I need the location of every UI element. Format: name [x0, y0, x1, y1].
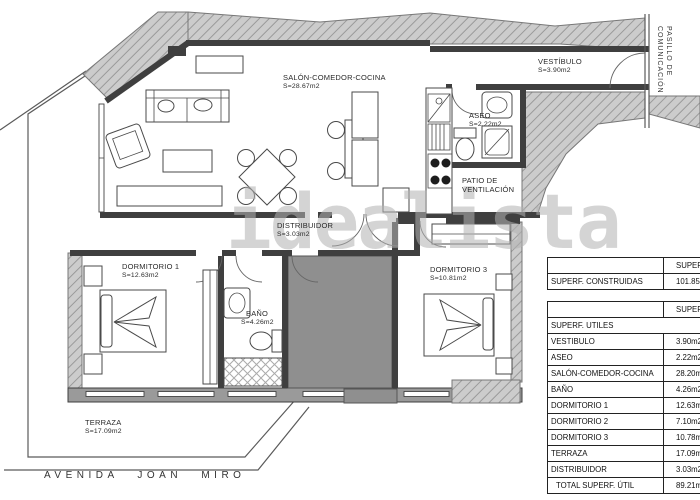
table-row: SALÓN-COMEDOR-COCINA 28.20m2 [548, 366, 700, 382]
armchair [105, 123, 151, 169]
bath-toilet [250, 330, 282, 352]
header-empty-cell [548, 258, 664, 274]
row-value: 3.90m2 [664, 334, 700, 350]
room-name: VESTÍBULO [538, 57, 582, 66]
sofa [146, 90, 229, 122]
table-row: SUPERF. UTILES [548, 318, 700, 334]
room-area: S=10.81m2 [430, 274, 487, 283]
aseo-toilet [454, 128, 476, 160]
row-label: ASEO [548, 350, 664, 366]
row-value: 2.22m2 [664, 350, 700, 366]
label-bano: BAÑO S=4.26m2 [241, 309, 274, 327]
row-value: 17.09m2 [664, 446, 700, 462]
street-label: AVENIDA JOAN MIRO [44, 470, 245, 481]
header-cell: SUPERFICIES [664, 258, 700, 274]
row-label: BAÑO [548, 382, 664, 398]
room-name: BAÑO [241, 309, 268, 318]
row-label: TERRAZA [548, 446, 664, 462]
row-value: 28.20m2 [664, 366, 700, 382]
table-row: SUPERFICIES [548, 302, 700, 318]
row-label: SALÓN-COMEDOR-COCINA [548, 366, 664, 382]
room-area: S=12.63m2 [122, 271, 179, 280]
label-dormitorio-1: DORMITORIO 1 S=12.63m2 [122, 262, 179, 280]
kitchen-counter [426, 88, 452, 214]
surface-tables: SUPERFICIES SUPERF. CONSTRUIDAS 101.85m2… [547, 257, 700, 494]
row-label: DORMITORIO 1 [548, 398, 664, 414]
windows [99, 104, 104, 212]
label-salon: SALÓN-COMEDOR-COCINA S=28.67m2 [283, 73, 386, 91]
row-value: 3.03m2 [664, 462, 700, 478]
table-row: DISTRIBUIDOR 3.03m2 [548, 462, 700, 478]
room-name: DISTRIBUIDOR [277, 221, 333, 230]
label-terraza: TERRAZA S=17.09m2 [85, 418, 122, 436]
room-name: SALÓN-COMEDOR-COCINA [283, 73, 386, 82]
kitchen-side-table [383, 188, 409, 212]
row-value: 101.85m2 [664, 274, 700, 290]
total-value: 89.21m2 [664, 478, 700, 494]
room-name: DORMITORIO 3 [430, 265, 487, 274]
label-dormitorio-3: DORMITORIO 3 S=10.81m2 [430, 265, 487, 283]
row-label: DISTRIBUIDOR [548, 462, 664, 478]
table-row: DORMITORIO 1 12.63m2 [548, 398, 700, 414]
table-row: VESTIBULO 3.90m2 [548, 334, 700, 350]
label-patio: PATIO DE VENTILACIÓN [462, 176, 514, 194]
shower-tray [224, 358, 282, 386]
row-label: VESTIBULO [548, 334, 664, 350]
label-vestibulo: VESTÍBULO S=3.90m2 [538, 57, 582, 75]
table-row: SUPERFICIES [548, 258, 700, 274]
header-empty-cell [548, 302, 664, 318]
table-row: BAÑO 4.26m2 [548, 382, 700, 398]
room-name: PATIO DE VENTILACIÓN [462, 176, 514, 194]
total-label: TOTAL SUPERF. ÚTIL [548, 478, 664, 494]
room-name: ASEO [469, 111, 491, 120]
section-label: SUPERF. UTILES [548, 318, 700, 334]
bed-dormitorio-1 [84, 266, 166, 374]
room-area: S=3.03m2 [277, 230, 333, 239]
floor-plan-page: { "watermark_text": "idealista", "street… [0, 0, 700, 500]
label-distribuidor: DISTRIBUIDOR S=3.03m2 [277, 221, 333, 239]
table-row: DORMITORIO 3 10.78m2 [548, 430, 700, 446]
table-row: ASEO 2.22m2 [548, 350, 700, 366]
coffee-table [163, 150, 212, 172]
room-name: DORMITORIO 1 [122, 262, 179, 271]
label-aseo: ASEO S=2.22m2 [469, 111, 502, 129]
sideboard [117, 186, 222, 206]
row-value: 4.26m2 [664, 382, 700, 398]
row-label: DORMITORIO 2 [548, 414, 664, 430]
tv-cabinet [196, 56, 243, 73]
dining-table [238, 149, 297, 205]
wardrobe-dormitorio-1 [203, 270, 217, 384]
room-area: S=2.22m2 [469, 120, 502, 129]
row-value: 10.78m2 [664, 430, 700, 446]
room-area: S=17.09m2 [85, 427, 122, 436]
table-row: TOTAL SUPERF. ÚTIL 89.21m2 [548, 478, 700, 494]
bed-dormitorio-3 [424, 274, 512, 374]
wardrobe-dormitorio-3 [432, 224, 510, 244]
header-cell: SUPERFICIES [664, 302, 700, 318]
built-surface-table: SUPERFICIES SUPERF. CONSTRUIDAS 101.85m2 [547, 257, 700, 290]
row-label: SUPERF. CONSTRUIDAS [548, 274, 664, 290]
row-value: 7.10m2 [664, 414, 700, 430]
table-row: TERRAZA 17.09m2 [548, 446, 700, 462]
corridor-label: PASILLO DE COMUNICACIÓN [655, 26, 673, 94]
room-name: TERRAZA [85, 418, 121, 427]
room-area: S=28.67m2 [283, 82, 386, 91]
row-value: 12.63m2 [664, 398, 700, 414]
room-area: S=4.26m2 [241, 318, 274, 327]
usable-surface-table: SUPERFICIES SUPERF. UTILES VESTIBULO 3.9… [547, 301, 700, 494]
aseo-shower [482, 126, 512, 158]
table-row: SUPERF. CONSTRUIDAS 101.85m2 [548, 274, 700, 290]
row-label: DORMITORIO 3 [548, 430, 664, 446]
room-area: S=3.90m2 [538, 66, 582, 75]
table-row: DORMITORIO 2 7.10m2 [548, 414, 700, 430]
